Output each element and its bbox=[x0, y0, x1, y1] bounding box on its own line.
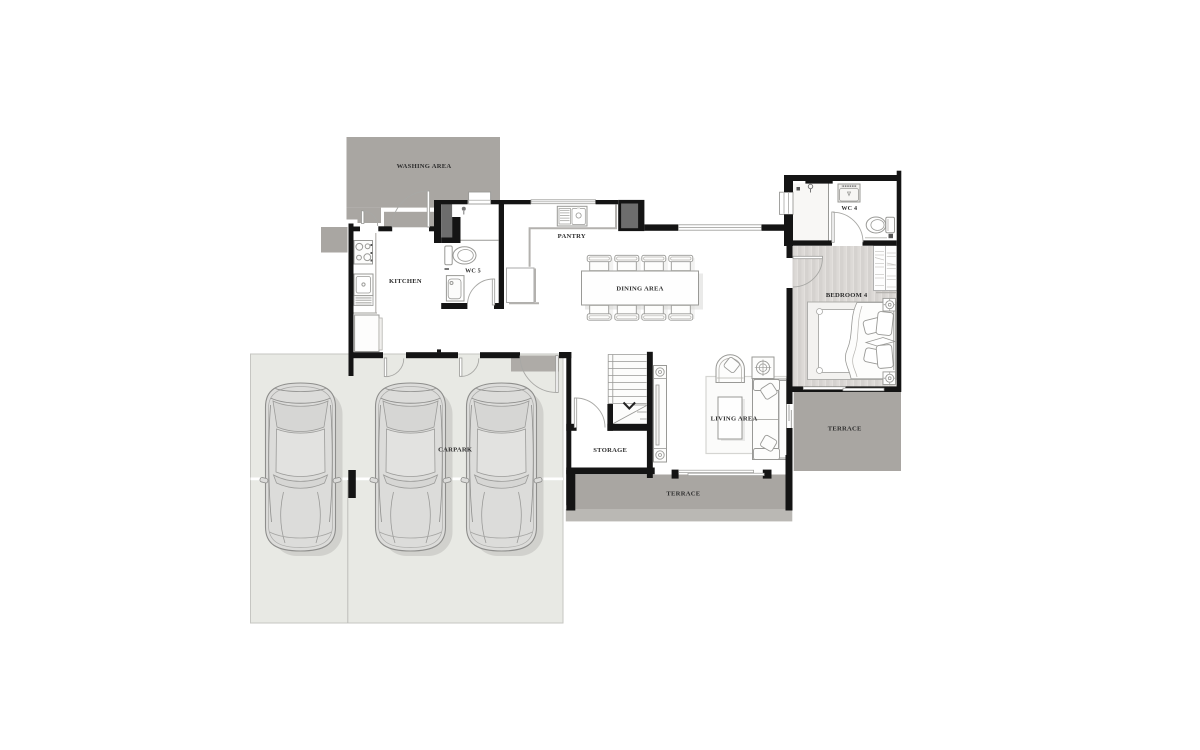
svg-text:TERRACE: TERRACE bbox=[666, 491, 700, 498]
svg-text:WC 5: WC 5 bbox=[465, 268, 481, 274]
svg-text:BEDROOM 4: BEDROOM 4 bbox=[826, 292, 868, 299]
svg-text:KITCHEN: KITCHEN bbox=[389, 278, 422, 285]
svg-text:DINING AREA: DINING AREA bbox=[616, 285, 663, 292]
svg-text:WASHING AREA: WASHING AREA bbox=[397, 163, 452, 170]
svg-text:WC 4: WC 4 bbox=[841, 206, 857, 212]
svg-text:LIVING AREA: LIVING AREA bbox=[711, 415, 758, 422]
svg-text:PANTRY: PANTRY bbox=[558, 233, 586, 240]
svg-text:CARPARK: CARPARK bbox=[438, 447, 473, 454]
svg-text:TERRACE: TERRACE bbox=[828, 426, 862, 433]
svg-text:STORAGE: STORAGE bbox=[593, 447, 627, 454]
